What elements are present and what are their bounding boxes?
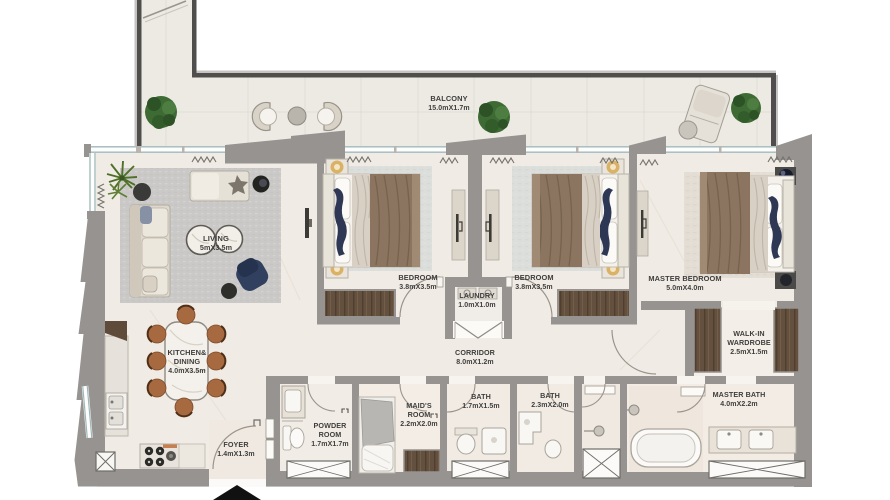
svg-text:FOYER: FOYER [223, 440, 249, 449]
svg-text:WALK-IN: WALK-IN [733, 329, 764, 338]
svg-text:2.2mX2.0m: 2.2mX2.0m [400, 421, 437, 428]
svg-text:LIVING: LIVING [203, 234, 229, 243]
svg-text:4.0mX3.5m: 4.0mX3.5m [168, 368, 205, 375]
svg-text:4.0mX2.2m: 4.0mX2.2m [720, 401, 757, 408]
svg-text:1.0mX1.0m: 1.0mX1.0m [458, 302, 495, 309]
svg-text:3.8mX3.5m: 3.8mX3.5m [515, 284, 552, 291]
svg-text:BEDROOM: BEDROOM [514, 273, 553, 282]
svg-text:15.0mX1.7m: 15.0mX1.7m [428, 105, 469, 112]
svg-text:1.7mX1.5m: 1.7mX1.5m [462, 403, 499, 410]
svg-text:POWDER: POWDER [314, 421, 348, 430]
svg-text:BALCONY: BALCONY [430, 94, 467, 103]
svg-text:BEDROOM: BEDROOM [398, 273, 437, 282]
svg-text:2.5mX1.5m: 2.5mX1.5m [730, 349, 767, 356]
svg-text:LAUNDRY: LAUNDRY [459, 291, 495, 300]
svg-text:MASTER BATH: MASTER BATH [713, 390, 766, 399]
svg-text:1.7mX1.7m: 1.7mX1.7m [311, 441, 348, 448]
svg-text:MAID'S: MAID'S [406, 401, 432, 410]
svg-text:5mX3.5m: 5mX3.5m [200, 243, 232, 252]
svg-text:ROOM: ROOM [408, 410, 431, 419]
svg-text:2.3mX2.0m: 2.3mX2.0m [531, 402, 568, 409]
svg-text:1.4mX1.3m: 1.4mX1.3m [217, 451, 254, 458]
svg-text:MASTER BEDROOM: MASTER BEDROOM [648, 274, 721, 283]
svg-text:BATH: BATH [471, 392, 491, 401]
svg-text:8.0mX1.2m: 8.0mX1.2m [456, 359, 493, 366]
svg-text:DINING: DINING [174, 357, 201, 366]
svg-text:CORRIDOR: CORRIDOR [455, 348, 496, 357]
svg-text:WARDROBE: WARDROBE [727, 338, 771, 347]
svg-text:5.0mX4.0m: 5.0mX4.0m [666, 285, 703, 292]
svg-text:KITCHEN&: KITCHEN& [168, 348, 208, 357]
svg-text:BATH: BATH [540, 391, 560, 400]
svg-text:3.8mX3.5m: 3.8mX3.5m [399, 284, 436, 291]
svg-text:ROOM: ROOM [319, 430, 342, 439]
